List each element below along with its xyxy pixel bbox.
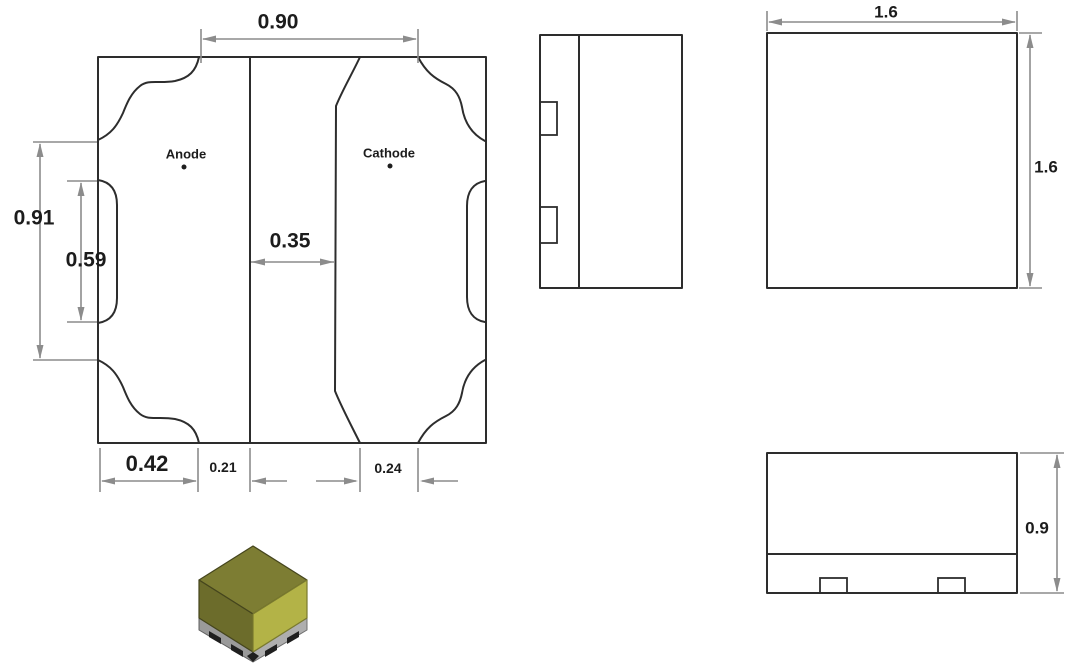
cathode-label: Cathode <box>363 147 415 160</box>
led-3d-render <box>199 546 307 662</box>
top-view <box>767 11 1042 288</box>
arrowhead <box>251 259 265 266</box>
top-view-body <box>767 33 1017 288</box>
dim-label-anode-gap: 0.21 <box>209 460 236 474</box>
arrowhead <box>1027 34 1034 48</box>
side-view-lower-contact <box>540 207 557 243</box>
arrowhead <box>202 36 216 43</box>
dim-label-topview-width: 1.6 <box>874 4 898 21</box>
arrowhead <box>252 478 266 485</box>
front-view <box>767 453 1064 593</box>
dim-label-anode-width: 0.42 <box>126 453 169 475</box>
side-view-upper-contact <box>540 102 557 135</box>
arrowhead <box>320 259 334 266</box>
cathode-marker-dot <box>388 164 393 169</box>
dim-label-pad-gap: 0.35 <box>270 231 311 252</box>
top-right-corner-curve <box>418 57 485 141</box>
dim-label-top-width: 0.90 <box>258 12 299 33</box>
arrowhead <box>101 478 115 485</box>
arrowhead <box>420 478 434 485</box>
arrowhead <box>1002 19 1016 26</box>
led-package-dimension-drawing: 0.90 0.91 0.59 0.35 0.42 0.21 0.24 Anode… <box>0 0 1080 664</box>
top-left-corner-curve <box>98 57 199 140</box>
dim-label-outer-height: 0.91 <box>14 208 55 229</box>
arrowhead <box>1027 273 1034 287</box>
dim-label-notch-height: 0.59 <box>66 250 107 271</box>
arrowhead <box>37 345 44 359</box>
dim-label-topview-height: 1.6 <box>1034 159 1058 176</box>
arrowhead <box>78 307 85 321</box>
dim-label-frontview-height: 0.9 <box>1025 520 1049 537</box>
bottom-left-corner-curve <box>98 360 199 443</box>
front-view-body <box>767 453 1017 593</box>
arrowhead <box>768 19 782 26</box>
right-edge-notch <box>467 181 485 322</box>
anode-label: Anode <box>166 148 206 161</box>
dim-label-cathode-inset: 0.24 <box>374 461 401 475</box>
arrowhead <box>78 182 85 196</box>
arrowhead <box>183 478 197 485</box>
front-view-right-contact <box>938 578 965 593</box>
arrowhead <box>344 478 358 485</box>
arrowhead <box>403 36 417 43</box>
arrowhead <box>1054 454 1061 468</box>
anode-marker-dot <box>182 165 187 170</box>
front-view-left-contact <box>820 578 847 593</box>
side-view-body <box>540 35 682 288</box>
arrowhead <box>37 143 44 157</box>
technical-drawing-svg <box>0 0 1080 664</box>
cathode-pad-left-edge <box>335 57 360 443</box>
side-view <box>540 35 682 288</box>
arrowhead <box>1054 578 1061 592</box>
bottom-right-corner-curve <box>418 360 485 443</box>
